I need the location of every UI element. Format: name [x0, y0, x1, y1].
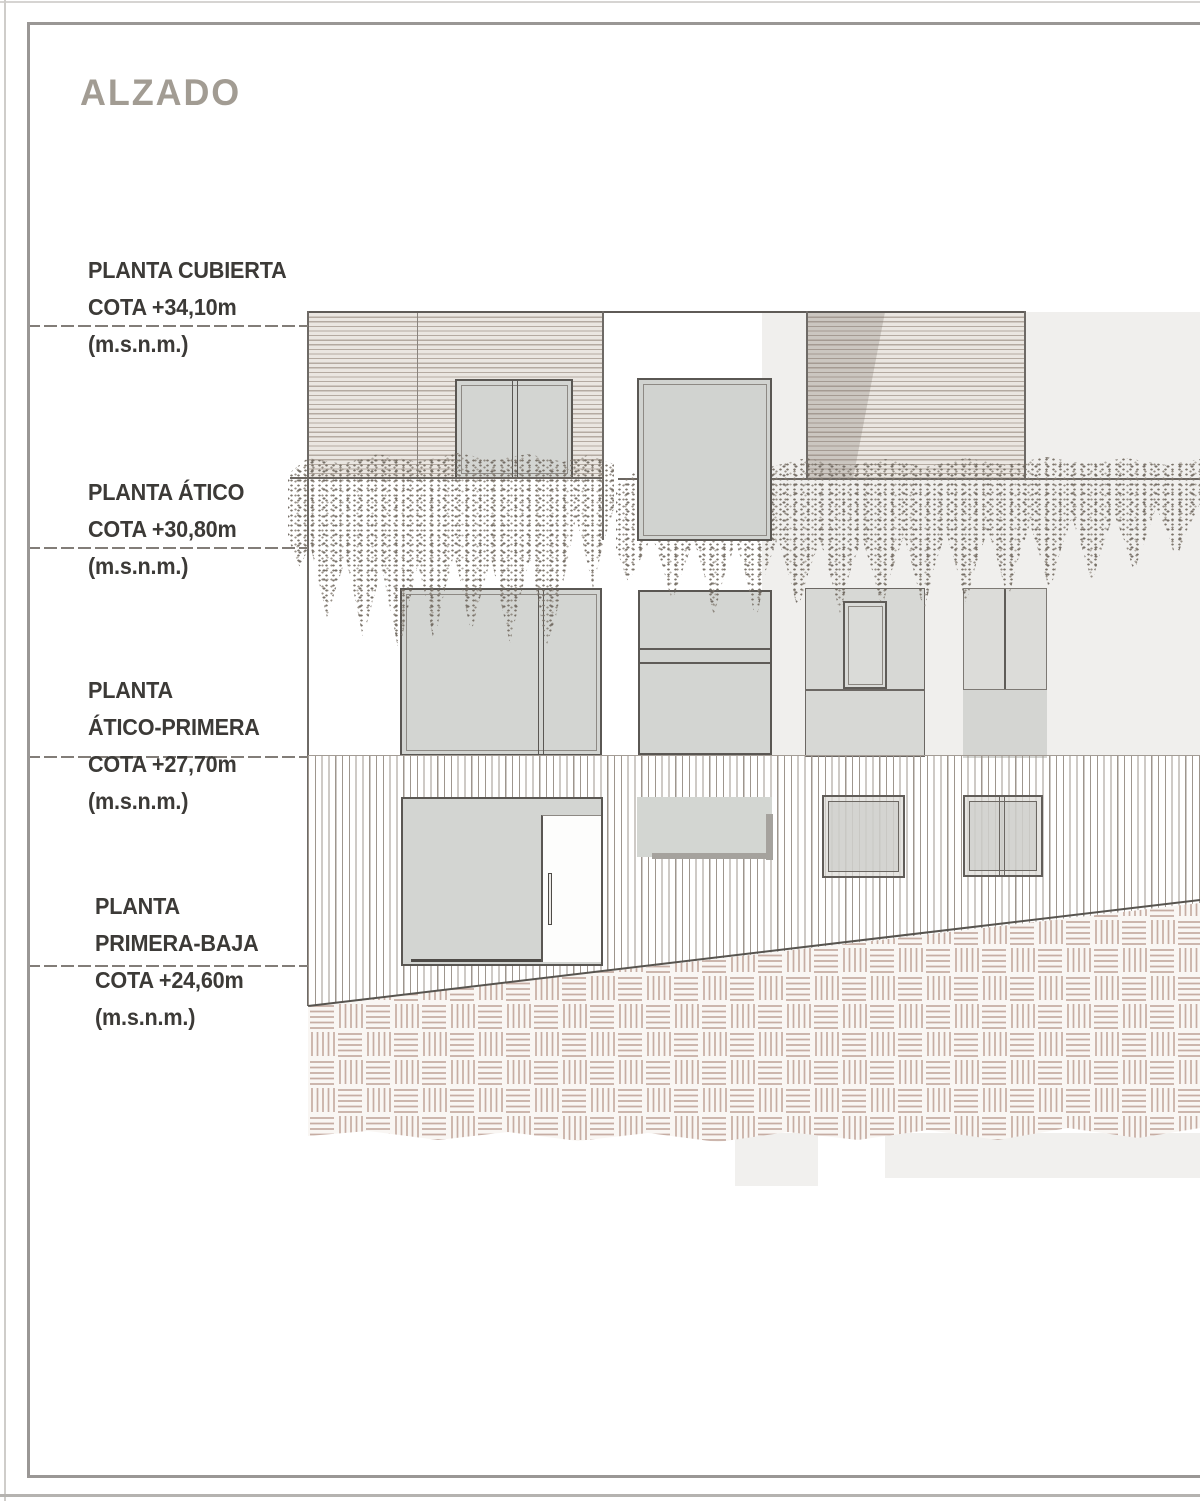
- mid-block-far-right-upper: [963, 588, 1047, 690]
- lower-window-left: [822, 795, 905, 878]
- lower-window-right: [963, 795, 1043, 877]
- level-label-primera-baja: PLANTA PRIMERA-BAJA COTA +24,60m (m.s.n.…: [95, 888, 259, 1036]
- sheet-inner-left-border: [27, 22, 30, 1477]
- first-floor-line: [308, 755, 1200, 756]
- level-cota: COTA +27,70m: [88, 746, 260, 783]
- level-name: PLANTA: [95, 888, 259, 925]
- mid-block-right-sill-line: [806, 689, 924, 691]
- sheet-outer-bottom-border: [0, 1494, 1200, 1497]
- entrance-opening: [401, 797, 603, 966]
- canopy-shadow-bottom: [652, 853, 773, 859]
- level-name: PRIMERA-BAJA: [95, 925, 259, 962]
- drawing-title: ALZADO: [80, 72, 241, 114]
- mid-window-center-rail-lower: [640, 662, 770, 664]
- lower-canopy-slab: [637, 797, 772, 857]
- building-top-line: [308, 311, 1025, 313]
- level-label-cubierta: PLANTA CUBIERTA COTA +34,10m (m.s.n.m.): [88, 252, 287, 363]
- ground-shade-patch-left: [735, 1133, 818, 1186]
- recess-right-edge: [806, 311, 808, 480]
- level-name: PLANTA CUBIERTA: [88, 252, 287, 289]
- level-cota: COTA +24,60m: [95, 962, 259, 999]
- sheet-outer-top-border: [0, 1, 1200, 3]
- inset-window-inner-frame: [848, 606, 883, 685]
- mid-block-right-inset-window: [843, 601, 887, 689]
- ground-shade-patch-right: [885, 1133, 1200, 1178]
- level-name: PLANTA: [88, 672, 260, 709]
- level-name: PLANTA ÁTICO: [88, 474, 244, 511]
- level-cota: COTA +30,80m: [88, 511, 244, 548]
- center-top-window-inner-frame: [643, 384, 767, 536]
- level-name: ÁTICO-PRIMERA: [88, 709, 260, 746]
- mid-block-far-right-lower: [963, 690, 1047, 758]
- level-unit: (m.s.n.m.): [95, 999, 259, 1036]
- level-unit: (m.s.n.m.): [88, 783, 260, 820]
- entrance-threshold: [411, 959, 541, 962]
- level-unit: (m.s.n.m.): [88, 548, 244, 585]
- building-right-edge: [1024, 311, 1026, 480]
- lower-window-right-divider: [999, 797, 1005, 875]
- far-right-window-divider: [1004, 589, 1006, 689]
- door-handle: [548, 873, 552, 925]
- center-top-window: [637, 378, 772, 541]
- level-label-atico-primera: PLANTA ÁTICO-PRIMERA COTA +27,70m (m.s.n…: [88, 672, 260, 820]
- level-label-atico: PLANTA ÁTICO COTA +30,80m (m.s.n.m.): [88, 474, 244, 585]
- roof-band-divider-line: [417, 312, 418, 478]
- level-unit: (m.s.n.m.): [88, 326, 287, 363]
- level-cota: COTA +34,10m: [88, 289, 287, 326]
- elevation-drawing: ALZADO PLANTA CUBIERTA COTA +34,10m (m.s…: [0, 0, 1200, 1501]
- sheet-inner-bottom-border: [27, 1475, 1200, 1478]
- sheet-outer-left-border: [4, 0, 6, 1501]
- sheet-inner-top-border: [27, 22, 1200, 25]
- lower-window-left-glass: [828, 801, 899, 872]
- mid-window-center-rail-upper: [640, 648, 770, 650]
- mid-window-center: [638, 590, 772, 755]
